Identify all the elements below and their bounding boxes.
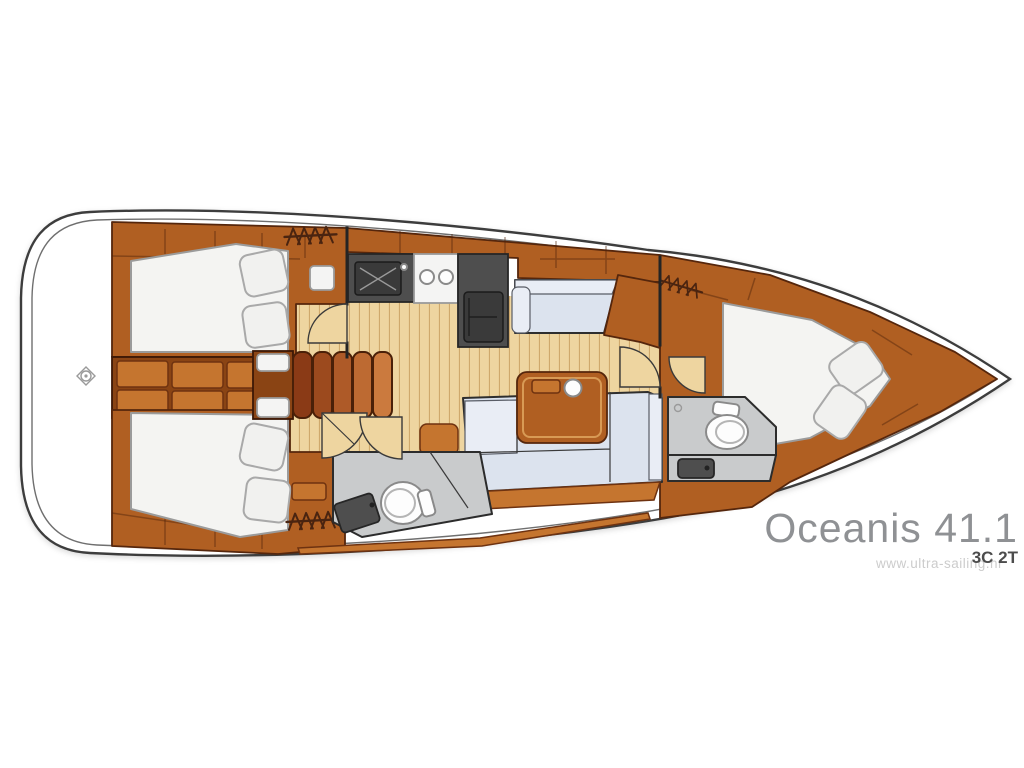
step-box bbox=[292, 483, 326, 500]
pillow bbox=[243, 476, 292, 523]
cup-holder bbox=[565, 380, 582, 397]
saloon-table bbox=[517, 372, 607, 443]
sofa-corner-cushion bbox=[465, 400, 517, 455]
yacht-floor-plan bbox=[0, 0, 1024, 768]
layout-code: 3C 2T bbox=[700, 548, 1018, 568]
pillow bbox=[238, 248, 290, 298]
bedside-locker bbox=[310, 266, 334, 290]
pillow bbox=[238, 422, 290, 472]
table-hinge bbox=[532, 380, 560, 393]
faucet bbox=[401, 264, 407, 270]
floor-plan-canvas: www.ultra-sailing.hr Oceanis 41.1 3C 2T bbox=[0, 0, 1024, 768]
burner bbox=[420, 270, 434, 284]
settee-armrest bbox=[512, 287, 530, 333]
forward-head-toilet bbox=[706, 415, 748, 449]
sofa-backrest bbox=[649, 394, 662, 480]
burner bbox=[439, 270, 453, 284]
companionway-stairs bbox=[253, 351, 392, 419]
pillow bbox=[241, 301, 290, 349]
stool bbox=[420, 424, 458, 455]
boat-model-title: Oceanis 41.1 bbox=[700, 505, 1018, 552]
